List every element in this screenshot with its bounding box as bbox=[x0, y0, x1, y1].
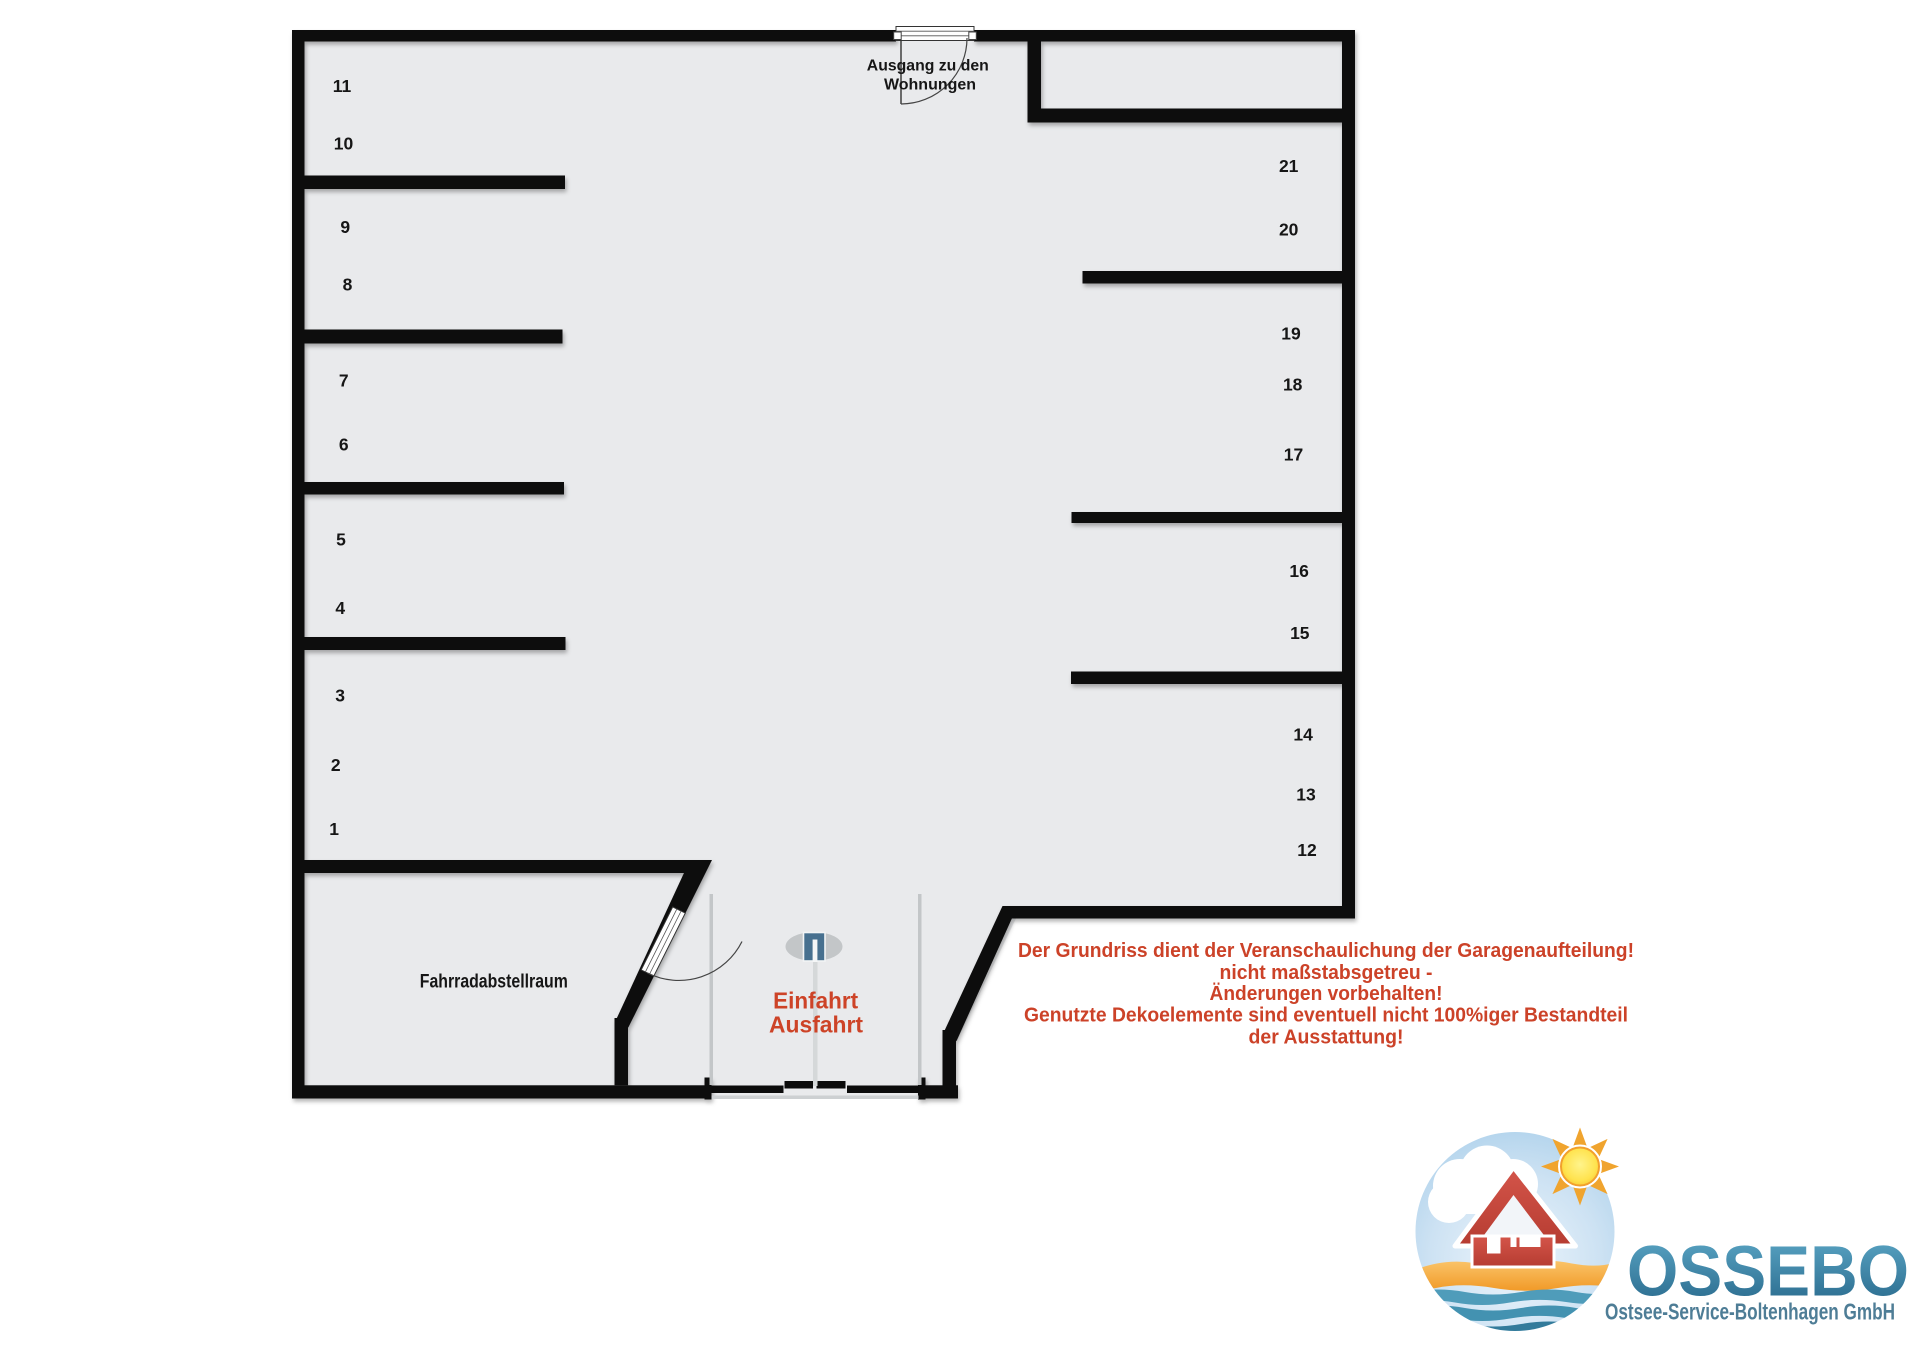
svg-text:5: 5 bbox=[336, 530, 346, 550]
svg-text:Ostsee-Service-Boltenhagen Gmb: Ostsee-Service-Boltenhagen GmbH bbox=[1605, 1299, 1895, 1325]
svg-text:4: 4 bbox=[335, 598, 345, 618]
svg-text:17: 17 bbox=[1284, 444, 1303, 464]
svg-text:Änderungen vorbehalten!: Änderungen vorbehalten! bbox=[1210, 982, 1443, 1005]
svg-text:7: 7 bbox=[339, 371, 349, 391]
svg-text:2: 2 bbox=[331, 755, 341, 775]
svg-text:Ausgang zu den: Ausgang zu den bbox=[867, 57, 989, 74]
svg-text:Ausfahrt: Ausfahrt bbox=[769, 1012, 863, 1038]
svg-text:21: 21 bbox=[1279, 156, 1299, 176]
svg-text:18: 18 bbox=[1283, 375, 1303, 395]
svg-text:3: 3 bbox=[335, 685, 345, 705]
svg-text:14: 14 bbox=[1293, 725, 1313, 745]
svg-text:Fahrradabstellraum: Fahrradabstellraum bbox=[420, 972, 568, 993]
svg-text:16: 16 bbox=[1289, 561, 1309, 581]
svg-text:Genutzte Dekoelemente sind eve: Genutzte Dekoelemente sind eventuell nic… bbox=[1024, 1005, 1628, 1027]
svg-text:8: 8 bbox=[343, 275, 353, 295]
svg-text:6: 6 bbox=[339, 435, 349, 455]
svg-text:Der Grundriss dient der Verans: Der Grundriss dient der Veranschaulichun… bbox=[1018, 940, 1634, 962]
svg-text:19: 19 bbox=[1281, 323, 1301, 343]
svg-text:nicht maßstabsgetreu -: nicht maßstabsgetreu - bbox=[1220, 962, 1433, 984]
svg-text:11: 11 bbox=[333, 76, 352, 96]
svg-text:20: 20 bbox=[1279, 220, 1299, 240]
svg-text:Einfahrt: Einfahrt bbox=[773, 988, 858, 1014]
svg-text:Wohnungen: Wohnungen bbox=[884, 77, 976, 94]
svg-text:9: 9 bbox=[340, 217, 350, 237]
svg-text:der Ausstattung!: der Ausstattung! bbox=[1249, 1027, 1404, 1049]
svg-text:1: 1 bbox=[329, 819, 339, 839]
svg-text:12: 12 bbox=[1297, 840, 1317, 860]
svg-text:13: 13 bbox=[1296, 785, 1316, 805]
svg-text:10: 10 bbox=[334, 134, 354, 154]
svg-text:15: 15 bbox=[1290, 623, 1310, 643]
